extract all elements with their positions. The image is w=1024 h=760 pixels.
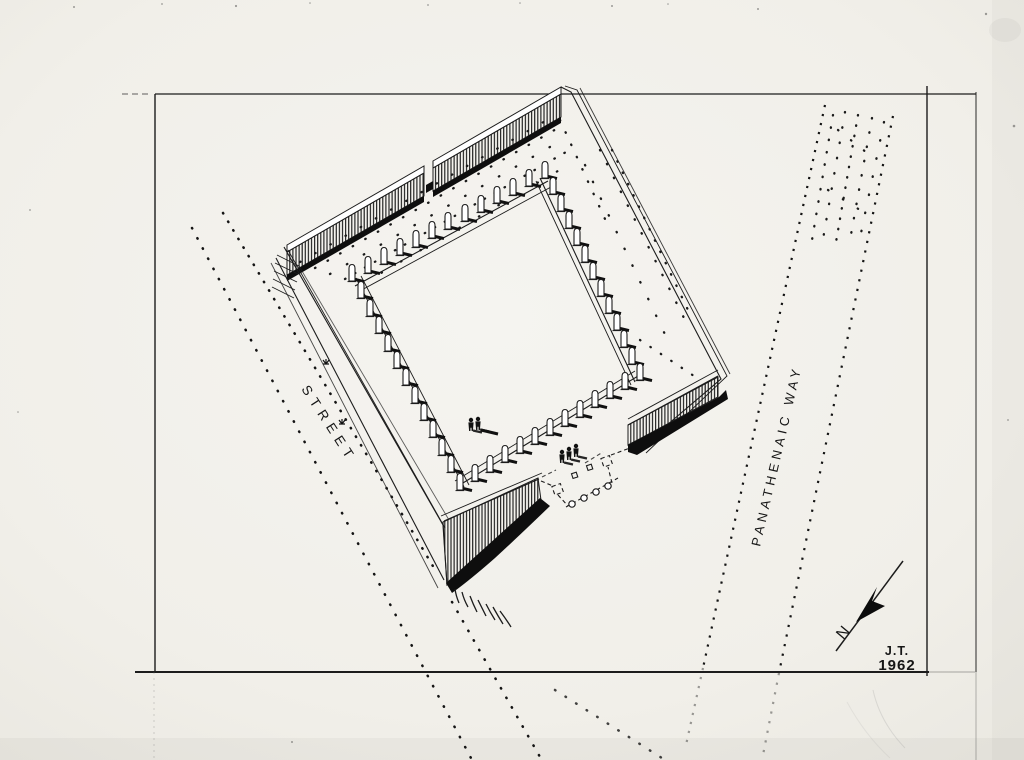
paper-edge-shade-right — [992, 0, 1024, 760]
axonometric-reconstruction-drawing: STREET PANATHENAIC WAY — [0, 0, 1024, 760]
signature-initials: J.T. — [885, 644, 909, 658]
scanned-drawing-page: STREET PANATHENAIC WAY — [0, 0, 1024, 760]
paper-background — [0, 0, 1024, 760]
signature-year: 1962 — [878, 657, 915, 674]
paper-smudge — [989, 18, 1021, 42]
